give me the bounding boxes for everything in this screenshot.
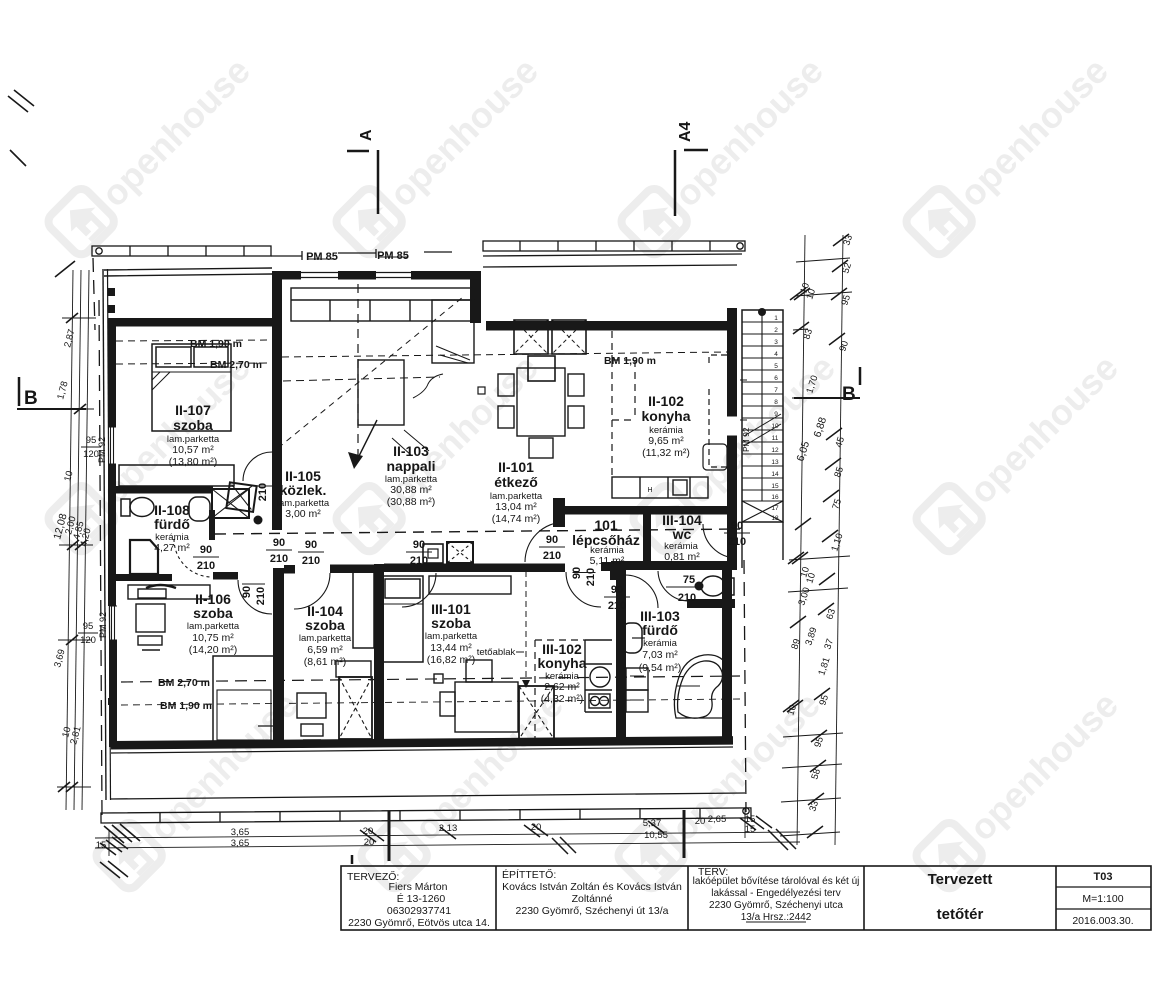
svg-text:75: 75 [683, 574, 695, 586]
svg-text:BM 1,90 m: BM 1,90 m [160, 700, 212, 712]
svg-text:210: 210 [728, 536, 746, 548]
svg-text:6: 6 [774, 375, 778, 382]
svg-text:2230 Gyömrő, Széchenyi utca: 2230 Gyömrő, Széchenyi utca [709, 900, 843, 911]
svg-text:PM 92: PM 92 [98, 612, 108, 638]
svg-text:10,75 m²: 10,75 m² [192, 632, 234, 644]
svg-text:tetőablak: tetőablak [477, 647, 516, 658]
svg-text:13/a Hrsz.:2442: 13/a Hrsz.:2442 [741, 912, 812, 923]
svg-text:3,65: 3,65 [231, 838, 250, 849]
svg-text:2,13: 2,13 [439, 823, 458, 834]
svg-text:2016.003.30.: 2016.003.30. [1072, 915, 1133, 927]
svg-text:közlek.: közlek. [280, 482, 327, 498]
svg-text:13: 13 [771, 459, 779, 466]
svg-text:fürdő: fürdő [642, 622, 678, 638]
svg-text:13,04 m²: 13,04 m² [495, 501, 537, 513]
svg-text:(30,88 m²): (30,88 m²) [387, 496, 435, 508]
svg-text:B: B [24, 388, 38, 409]
svg-text:Kovács István Zoltán és Kovács: Kovács István Zoltán és Kovács István [502, 881, 682, 893]
svg-text:A: A [358, 129, 375, 141]
svg-text:1: 1 [774, 315, 778, 322]
svg-text:210: 210 [585, 568, 597, 586]
svg-text:4,27 m²: 4,27 m² [154, 542, 190, 554]
svg-text:06302937741: 06302937741 [387, 905, 451, 917]
svg-text:20: 20 [364, 837, 375, 848]
svg-text:M=1:100: M=1:100 [1082, 893, 1123, 905]
svg-text:lakóépület bővítése tárolóval: lakóépület bővítése tárolóval és két új [693, 876, 860, 887]
svg-text:210: 210 [678, 592, 696, 604]
svg-text:Tervezett: Tervezett [928, 871, 993, 888]
svg-text:9,65 m²: 9,65 m² [648, 435, 684, 447]
svg-text:13,44 m²: 13,44 m² [430, 642, 472, 654]
svg-text:fürdő: fürdő [154, 516, 190, 532]
svg-text:5,37: 5,37 [643, 818, 662, 829]
svg-text:wc: wc [672, 526, 692, 542]
svg-text:2230 Gyömrő, Széchenyi út 13/a: 2230 Gyömrő, Széchenyi út 13/a [516, 905, 669, 917]
svg-text:tetőtér: tetőtér [937, 906, 984, 923]
svg-text:15: 15 [96, 840, 107, 851]
svg-text:12: 12 [771, 447, 779, 454]
svg-text:lam.parketta: lam.parketta [187, 621, 240, 632]
svg-text:BM 2,70 m: BM 2,70 m [158, 677, 210, 689]
svg-text:3,65: 3,65 [231, 827, 250, 838]
svg-text:20: 20 [695, 816, 706, 827]
svg-text:H: H [647, 487, 652, 494]
svg-text:20: 20 [531, 822, 542, 833]
svg-text:90: 90 [546, 534, 558, 546]
svg-text:90: 90 [731, 520, 743, 532]
svg-text:0,81 m²: 0,81 m² [664, 551, 700, 563]
svg-text:120: 120 [80, 635, 96, 646]
svg-text:nappali: nappali [386, 458, 435, 474]
svg-text:5,11 m²: 5,11 m² [590, 555, 625, 567]
svg-text:szoba: szoba [193, 605, 233, 621]
svg-text:(14,74 m²): (14,74 m²) [492, 513, 540, 525]
svg-text:90: 90 [241, 586, 253, 598]
svg-text:ÉPÍTTETŐ:: ÉPÍTTETŐ: [502, 867, 556, 881]
svg-text:20: 20 [363, 826, 374, 837]
svg-text:szoba: szoba [431, 615, 471, 631]
svg-text:É 13-1260: É 13-1260 [397, 892, 446, 905]
svg-text:Zoltánné: Zoltánné [572, 893, 613, 905]
svg-text:9: 9 [774, 411, 778, 418]
svg-text:210: 210 [197, 560, 215, 572]
svg-text:Fiers Márton: Fiers Márton [389, 881, 448, 893]
svg-text:2,65: 2,65 [708, 814, 727, 825]
svg-text:95: 95 [83, 621, 94, 632]
svg-text:szoba: szoba [305, 617, 345, 633]
svg-text:lam.parketta: lam.parketta [425, 631, 478, 642]
svg-text:15: 15 [745, 824, 756, 835]
svg-text:lakással - Engedélyezési terv: lakással - Engedélyezési terv [711, 888, 841, 899]
svg-text:(8,61 m²): (8,61 m²) [304, 656, 347, 668]
svg-text:11: 11 [772, 435, 779, 442]
svg-text:95: 95 [86, 435, 97, 446]
svg-text:17: 17 [771, 505, 779, 512]
svg-text:konyha: konyha [641, 408, 690, 424]
svg-text:lam.parketta: lam.parketta [299, 633, 352, 644]
svg-text:B: B [842, 384, 856, 405]
svg-text:II-102: II-102 [648, 393, 684, 409]
svg-text:210: 210 [608, 600, 626, 612]
svg-text:étkező: étkező [494, 474, 538, 490]
svg-text:6,59 m²: 6,59 m² [307, 644, 343, 656]
svg-text:14: 14 [771, 471, 779, 478]
svg-text:(11,32 m²): (11,32 m²) [642, 447, 690, 459]
svg-text:7,03 m²: 7,03 m² [642, 649, 678, 661]
svg-text:8: 8 [774, 399, 778, 406]
svg-text:(4,32 m²): (4,32 m²) [541, 693, 584, 705]
svg-text:T03: T03 [1094, 871, 1113, 883]
svg-text:210: 210 [410, 555, 428, 567]
svg-text:PM 85: PM 85 [377, 250, 409, 262]
svg-text:BM 2,70 m: BM 2,70 m [210, 359, 262, 371]
svg-text:90: 90 [273, 537, 285, 549]
svg-text:101: 101 [594, 517, 618, 533]
svg-text:7: 7 [774, 387, 778, 394]
svg-text:120: 120 [83, 449, 99, 460]
svg-text:(14,20 m²): (14,20 m²) [189, 644, 237, 656]
svg-text:16: 16 [771, 494, 779, 501]
svg-text:A4: A4 [677, 121, 694, 142]
svg-text:210: 210 [255, 587, 267, 605]
svg-text:18: 18 [771, 515, 779, 522]
svg-text:2: 2 [774, 327, 778, 334]
svg-text:90: 90 [611, 584, 623, 596]
svg-text:30,88 m²: 30,88 m² [390, 484, 432, 496]
svg-text:II-103: II-103 [393, 443, 429, 459]
svg-text:210: 210 [302, 555, 320, 567]
svg-text:90: 90 [305, 539, 317, 551]
svg-text:10: 10 [771, 423, 779, 430]
svg-text:konyha: konyha [537, 655, 586, 671]
svg-text:II-101: II-101 [498, 459, 534, 475]
svg-text:II-107: II-107 [175, 402, 211, 418]
svg-text:15: 15 [771, 483, 779, 490]
svg-text:3: 3 [774, 339, 778, 346]
svg-text:10,57 m²: 10,57 m² [172, 444, 214, 456]
svg-text:2230 Gyömrő, Eötvös utca 14.: 2230 Gyömrő, Eötvös utca 14. [348, 917, 490, 929]
svg-text:210: 210 [543, 550, 561, 562]
svg-text:90: 90 [200, 544, 212, 556]
svg-text:210: 210 [270, 553, 288, 565]
svg-text:(13,80 m²): (13,80 m²) [169, 456, 217, 468]
svg-text:4: 4 [774, 351, 778, 358]
svg-text:10,55: 10,55 [644, 830, 668, 841]
svg-text:PM 85: PM 85 [306, 251, 338, 263]
svg-text:PM 92: PM 92 [741, 427, 751, 452]
svg-text:kerámia: kerámia [643, 638, 678, 649]
svg-text:3,00 m²: 3,00 m² [285, 508, 321, 520]
svg-text:5: 5 [774, 363, 778, 370]
